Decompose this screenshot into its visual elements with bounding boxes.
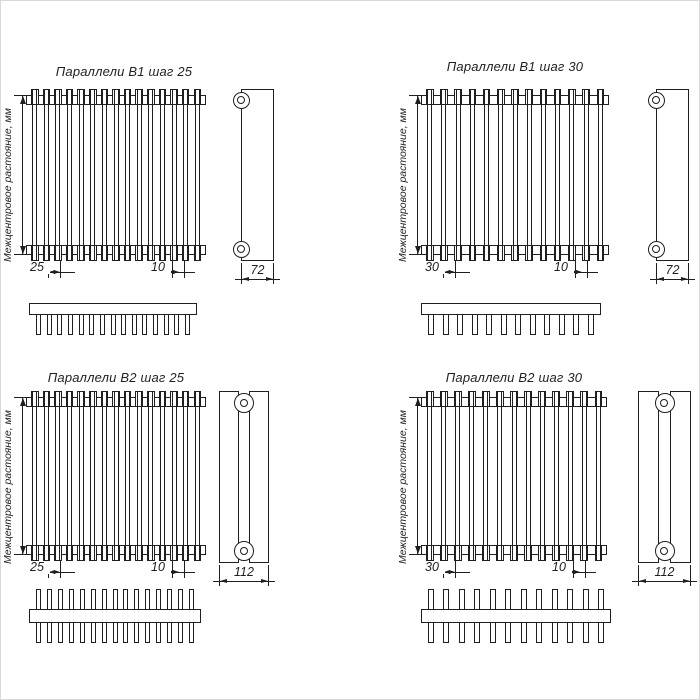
pipe-port-icon <box>234 393 254 413</box>
depth-dimension-value: 72 <box>650 263 695 277</box>
collector-bar <box>421 303 601 315</box>
tube-section <box>521 589 527 611</box>
front-view <box>426 89 604 261</box>
tube-section <box>552 589 558 611</box>
depth-dimension-value: 112 <box>213 565 275 579</box>
tube-section <box>91 589 96 611</box>
tube-section <box>68 313 73 335</box>
arrow-down-icon <box>20 546 26 554</box>
tube-section <box>189 621 194 643</box>
arrow-up-icon <box>415 398 421 406</box>
tube-section <box>505 621 511 643</box>
tube-section <box>598 589 604 611</box>
pipe-port-icon <box>648 241 665 258</box>
pipe-port-icon <box>648 92 665 109</box>
center-distance-label: Межцентровое растояние, мм <box>397 394 409 580</box>
tube-section <box>573 313 579 335</box>
tube-section <box>588 313 594 335</box>
tube-section <box>58 589 63 611</box>
tube <box>55 391 60 561</box>
tube-section <box>132 313 137 335</box>
tube-section <box>102 621 107 643</box>
tube-section <box>189 589 194 611</box>
center-distance-label: Межцентровое растояние, мм <box>2 92 14 278</box>
tube-section <box>536 621 542 643</box>
tube <box>541 89 546 261</box>
side-body <box>241 89 274 261</box>
tube-width-dimension-value: 10 <box>145 260 171 274</box>
tube <box>148 391 153 561</box>
extension-line <box>184 261 185 278</box>
drawing-title: Параллели В1 шаг 25 <box>39 64 209 79</box>
tube-section <box>501 313 507 335</box>
tube-section <box>36 313 41 335</box>
tube-section <box>583 621 589 643</box>
extension-line <box>60 561 61 578</box>
pipe-port-icon <box>233 92 250 109</box>
dimension-line <box>632 581 697 582</box>
tube-section <box>178 621 183 643</box>
tube-section <box>167 621 172 643</box>
tube <box>512 391 517 561</box>
tube-section <box>79 313 84 335</box>
tube-section <box>490 621 496 643</box>
tube-width-dimension-value: 10 <box>546 560 572 574</box>
tube <box>172 89 177 261</box>
tube-section <box>121 313 126 335</box>
dimension-row: 30 10 <box>426 261 604 287</box>
center-distance-label: Межцентровое растояние, мм <box>2 394 14 580</box>
side-body-front-row <box>219 391 239 563</box>
tube <box>32 89 37 261</box>
tube-width-dimension-value: 10 <box>145 560 171 574</box>
tube-section <box>153 313 158 335</box>
tube-section <box>530 313 536 335</box>
tube <box>483 391 488 561</box>
tube-section <box>36 589 41 611</box>
tube <box>44 89 49 261</box>
tube-section <box>111 313 116 335</box>
drawing-b1-step25: Параллели В1 шаг 25 Межцентровое растоян… <box>1 56 351 356</box>
tube-section <box>145 589 150 611</box>
tube <box>441 89 446 261</box>
tube-section <box>559 313 565 335</box>
tube-section <box>598 621 604 643</box>
dimension-row: 25 10 <box>31 261 201 287</box>
front-view <box>31 391 201 561</box>
tube <box>427 391 432 561</box>
side-body-rear-row <box>670 391 691 563</box>
tube-section <box>474 621 480 643</box>
top-view <box>421 589 611 645</box>
tube-section <box>552 621 558 643</box>
tube <box>160 391 165 561</box>
tube <box>55 89 60 261</box>
tube-section <box>474 589 480 611</box>
tube <box>540 391 545 561</box>
tube-section <box>486 313 492 335</box>
tube-section <box>123 589 128 611</box>
depth-dimension-value: 112 <box>632 565 697 579</box>
arrow-up-icon <box>415 96 421 104</box>
drawing-b2-step30: Параллели В2 шаг 30 Межцентровое растоян… <box>396 368 700 688</box>
tube-section <box>36 621 41 643</box>
arrow-up-icon <box>20 398 26 406</box>
tube-section <box>521 621 527 643</box>
side-view <box>656 89 689 261</box>
tube-section <box>515 313 521 335</box>
tube <box>137 89 142 261</box>
tube-section <box>490 589 496 611</box>
depth-dimension: 72 <box>650 263 695 289</box>
tube-section <box>544 313 550 335</box>
extension-line <box>585 561 586 578</box>
tube <box>554 391 559 561</box>
tube-width-dimension-value: 10 <box>548 260 574 274</box>
tube-section <box>167 589 172 611</box>
arrow-down-icon <box>415 546 421 554</box>
drawing-title: Параллели В1 шаг 30 <box>426 59 604 74</box>
tube <box>125 391 130 561</box>
extension-line <box>455 561 456 578</box>
dimension-row: 25 10 <box>31 561 201 587</box>
dimension-row: 30 10 <box>426 561 602 587</box>
tube <box>427 89 432 261</box>
pitch-dimension-value: 30 <box>419 260 445 274</box>
tube <box>90 89 95 261</box>
tube-section <box>100 313 105 335</box>
tube-section <box>80 589 85 611</box>
tube-section <box>69 589 74 611</box>
tube <box>137 391 142 561</box>
tube <box>160 89 165 261</box>
tube <box>102 89 107 261</box>
tube-section <box>185 313 190 335</box>
tube-section <box>134 589 139 611</box>
tube-section <box>443 621 449 643</box>
arrow-down-icon <box>20 246 26 254</box>
tube <box>102 391 107 561</box>
tube <box>183 89 188 261</box>
tube-section <box>113 621 118 643</box>
tube <box>497 391 502 561</box>
tube <box>79 89 84 261</box>
tube-section <box>102 589 107 611</box>
tube-section <box>505 589 511 611</box>
tube <box>584 89 589 261</box>
tube-section <box>47 621 52 643</box>
tube-section <box>459 589 465 611</box>
tube <box>470 89 475 261</box>
dimension-line <box>417 398 418 554</box>
side-body-rear-row <box>249 391 269 563</box>
tube <box>114 89 119 261</box>
tube <box>195 89 200 261</box>
top-view <box>29 589 201 645</box>
tube-section <box>69 621 74 643</box>
tube-section <box>428 589 434 611</box>
tube-section <box>156 621 161 643</box>
tube <box>484 89 489 261</box>
extension-line <box>184 561 185 578</box>
tube <box>596 391 601 561</box>
pipe-port-icon <box>655 541 675 561</box>
tube <box>568 391 573 561</box>
tube <box>598 89 603 261</box>
tube-section <box>156 589 161 611</box>
tube-section <box>123 621 128 643</box>
top-view <box>421 303 601 339</box>
tube <box>183 391 188 561</box>
pitch-dimension-value: 25 <box>24 260 50 274</box>
pipe-port-icon <box>234 541 254 561</box>
drawing-b2-step25: Параллели В2 шаг 25 Межцентровое растоян… <box>1 368 351 688</box>
dimension-line <box>22 96 23 254</box>
tube <box>526 391 531 561</box>
drawing-title: Параллели В2 шаг 25 <box>31 370 201 385</box>
tube <box>67 89 72 261</box>
tube-section <box>113 589 118 611</box>
tube-section <box>91 621 96 643</box>
tube-section <box>459 621 465 643</box>
tube-section <box>567 589 573 611</box>
tube-section <box>428 621 434 643</box>
tube <box>125 89 130 261</box>
side-view <box>638 391 691 563</box>
depth-dimension: 112 <box>213 565 275 591</box>
arrow-up-icon <box>20 96 26 104</box>
pitch-dimension-value: 25 <box>24 560 50 574</box>
tube <box>513 89 518 261</box>
depth-dimension: 112 <box>632 565 697 591</box>
collector-bar <box>29 303 197 315</box>
tube-section <box>80 621 85 643</box>
front-view <box>426 391 602 561</box>
tube <box>90 391 95 561</box>
radiator-drawing-sheet: Параллели В1 шаг 25 Межцентровое растоян… <box>0 0 700 700</box>
drawing-b1-step30: Параллели В1 шаг 30 Межцентровое растоян… <box>396 56 700 356</box>
pitch-dimension-value: 30 <box>419 560 445 574</box>
tube <box>469 391 474 561</box>
top-view <box>29 303 197 339</box>
tube-section <box>428 313 434 335</box>
front-view <box>31 89 201 261</box>
tube-section <box>178 589 183 611</box>
tube <box>79 391 84 561</box>
tube-section <box>443 313 449 335</box>
tube-section <box>134 621 139 643</box>
tube-section <box>47 313 52 335</box>
dimension-line <box>650 279 695 280</box>
tube-section <box>142 313 147 335</box>
extension-line <box>455 261 456 278</box>
pipe-port-icon <box>655 393 675 413</box>
tube <box>527 89 532 261</box>
tube <box>555 89 560 261</box>
tube <box>195 391 200 561</box>
dimension-line <box>417 96 418 254</box>
tube <box>172 391 177 561</box>
tube-section <box>443 589 449 611</box>
depth-dimension-value: 72 <box>235 263 280 277</box>
tube-section <box>567 621 573 643</box>
pipe-port-icon <box>233 241 250 258</box>
tube-section <box>472 313 478 335</box>
tube-section <box>164 313 169 335</box>
tube-section <box>145 621 150 643</box>
drawing-title: Параллели В2 шаг 30 <box>426 370 602 385</box>
tube <box>456 89 461 261</box>
extension-line <box>587 261 588 278</box>
tube-section <box>174 313 179 335</box>
center-distance-label: Межцентровое растояние, мм <box>397 92 409 278</box>
arrow-down-icon <box>415 246 421 254</box>
tube <box>114 391 119 561</box>
tube-section <box>57 313 62 335</box>
tube <box>569 89 574 261</box>
tube-section <box>457 313 463 335</box>
tube-section <box>536 589 542 611</box>
side-view <box>241 89 274 261</box>
tube <box>44 391 49 561</box>
tube <box>32 391 37 561</box>
tube <box>582 391 587 561</box>
tube <box>498 89 503 261</box>
extension-line <box>60 261 61 278</box>
tube <box>148 89 153 261</box>
tube-section <box>47 589 52 611</box>
side-view <box>219 391 269 563</box>
collector-bar <box>29 609 201 623</box>
tube <box>441 391 446 561</box>
side-body-front-row <box>638 391 659 563</box>
dimension-line <box>22 398 23 554</box>
tube <box>455 391 460 561</box>
collector-bar <box>421 609 611 623</box>
side-body <box>656 89 689 261</box>
depth-dimension: 72 <box>235 263 280 289</box>
dimension-line <box>213 581 275 582</box>
tube-section <box>58 621 63 643</box>
dimension-line <box>235 279 280 280</box>
tube-section <box>583 589 589 611</box>
tube-section <box>89 313 94 335</box>
tube <box>67 391 72 561</box>
